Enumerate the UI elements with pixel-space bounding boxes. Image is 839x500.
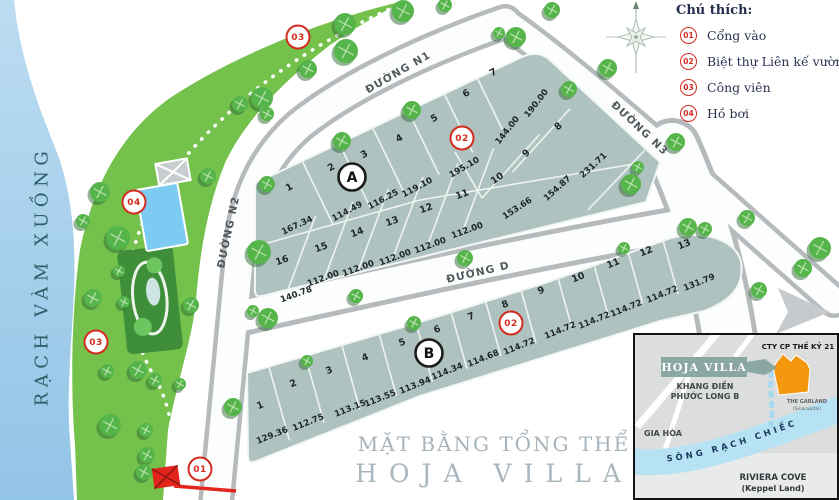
tree-icon — [542, 2, 561, 21]
poi-marker-04: 04 — [123, 191, 146, 214]
inset-project-label: HOJA VILLA — [661, 361, 746, 374]
legend-marker-03: 03 — [680, 79, 697, 96]
poi-marker-03: 03 — [287, 26, 310, 49]
service-box-icon — [155, 158, 190, 185]
inset-area-label-2: PHƯỚC LONG B — [671, 390, 740, 401]
legend-marker-01: 01 — [680, 27, 697, 44]
tree-icon — [332, 13, 357, 38]
svg-text:A: A — [347, 170, 358, 186]
site-plan: ĐƯỜNG N1 ĐƯỜNG N2 ĐƯỜNG N3 ĐƯỜNG D RẠCH … — [0, 0, 839, 500]
legend-item-pool: 04 Hồ bơi — [680, 105, 838, 122]
legend-label-01: Cổng vào — [707, 28, 766, 43]
inset-riviera-label-1: RIVIERA COVE — [740, 473, 807, 483]
tree-icon — [749, 282, 768, 301]
plan-title: MẶT BẰNG TỔNG THỂ HOJA VILLA — [338, 432, 650, 488]
legend-label-02: Biệt thự Liên kế vườn — [707, 54, 839, 69]
poi-marker-03: 03 — [85, 331, 108, 354]
legend-label-04: Hồ bơi — [707, 106, 749, 121]
svg-text:03: 03 — [89, 338, 103, 348]
inset-company-label: CTY CP THẾ KỶ 21 — [762, 341, 835, 351]
poi-marker-02: 02 — [451, 127, 474, 150]
legend-item-gate: 01 Cổng vào — [680, 27, 838, 44]
inset-giahoa-label: GIA HÒA — [644, 427, 683, 438]
location-inset-map: CTY CP THẾ KỶ 21 HOJA VILLA KHANG ĐIỀN P… — [633, 333, 839, 500]
svg-text:04: 04 — [127, 198, 141, 208]
river-label: RẠCH VÀM XUỒNG — [27, 146, 52, 407]
block-marker-a: A — [339, 164, 366, 191]
tree-icon — [436, 0, 453, 15]
inset-garland-label-1: THE GARLAND — [787, 399, 827, 405]
inset-garland-label-2: (Sinacapital) — [793, 406, 822, 412]
legend-label-03: Công viên — [707, 80, 771, 95]
plan-title-line1: MẶT BẰNG TỔNG THỂ — [338, 432, 650, 456]
legend: Chú thích: 01 Cổng vào 02 Biệt thự Liên … — [676, 3, 838, 131]
legend-marker-04: 04 — [680, 105, 697, 122]
legend-heading: Chú thích: — [676, 3, 838, 18]
svg-text:02: 02 — [455, 134, 469, 144]
poi-marker-02: 02 — [500, 312, 523, 335]
svg-text:03: 03 — [291, 33, 305, 43]
svg-text:B: B — [424, 346, 435, 362]
legend-item-villas: 02 Biệt thự Liên kế vườn — [680, 53, 838, 70]
plan-title-line2: HOJA VILLA — [338, 459, 650, 488]
legend-item-park: 03 Công viên — [680, 79, 838, 96]
poi-marker-01: 01 — [189, 458, 212, 481]
inset-riviera-label-2: (Keppel Land) — [741, 484, 804, 493]
tree-icon — [597, 59, 618, 80]
compass-icon — [606, 1, 666, 73]
block-marker-b: B — [416, 340, 443, 367]
svg-text:02: 02 — [504, 319, 518, 329]
tree-icon — [332, 39, 359, 66]
legend-marker-02: 02 — [680, 53, 697, 70]
tree-icon — [807, 237, 832, 262]
svg-text:01: 01 — [193, 465, 207, 475]
